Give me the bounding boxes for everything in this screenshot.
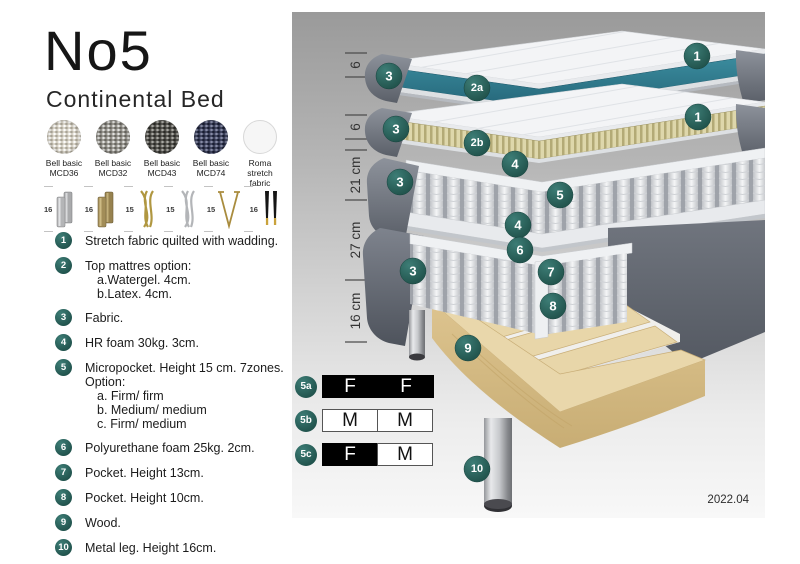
fabric-swatch: Bell basicMCD32 [91, 120, 135, 189]
fabric-swatch-icon [47, 120, 81, 154]
firmness-row-5a: 5a F F [295, 375, 434, 398]
feature-subitem: b. Medium/ medium [97, 403, 303, 417]
list-item: 8 Pocket. Height 10cm. [45, 489, 303, 506]
feature-badge: 1 [55, 232, 72, 249]
svg-text:1: 1 [693, 49, 700, 64]
leg-twist-gold-icon [136, 189, 158, 229]
fabric-swatch: Bell basicMCD74 [189, 120, 233, 189]
feature-text: Polyurethane foam 25kg. 2cm. [85, 439, 255, 456]
fabric-swatch: Bell basicMCD43 [140, 120, 184, 189]
feature-text: Stretch fabric quilted with wadding. [85, 232, 278, 249]
badge-fabric-mid: 3 [383, 116, 409, 142]
badge-micropocket: 5 [547, 182, 573, 208]
list-item: 5 Micropocket. Height 15 cm. 7zones. Opt… [45, 359, 303, 431]
fabric-swatch-icon [243, 120, 277, 154]
firmness-cell: M [322, 409, 378, 432]
svg-text:3: 3 [392, 122, 399, 137]
firmness-badge: 5c [295, 444, 317, 466]
fabric-swatch: Romastretch fabric [238, 120, 282, 189]
badge-pocket-13: 7 [538, 259, 564, 285]
svg-text:10: 10 [471, 463, 483, 475]
feature-badge: 4 [55, 334, 72, 351]
badge-wood: 9 [455, 335, 481, 361]
feature-badge: 8 [55, 489, 72, 506]
feature-text: Micropocket. Height 15 cm. 7zones. Optio… [85, 361, 284, 389]
svg-text:6: 6 [516, 243, 523, 258]
measure-label: 16 cm [348, 293, 363, 330]
firmness-badge: 5a [295, 376, 317, 398]
list-item: 3 Fabric. [45, 309, 303, 326]
feature-badge: 9 [55, 514, 72, 531]
list-item: 4 HR foam 30kg. 3cm. [45, 334, 303, 351]
leg-cylinder-silver-icon [54, 189, 76, 229]
feature-text: Wood. [85, 514, 121, 531]
badge-quilt-mid: 1 [685, 104, 711, 130]
list-item: 10 Metal leg. Height 16cm. [45, 539, 303, 556]
feature-text: Pocket. Height 13cm. [85, 464, 204, 481]
svg-text:3: 3 [396, 175, 403, 190]
firmness-cell: M [377, 409, 433, 432]
svg-text:2b: 2b [471, 137, 484, 149]
feature-list: 1 Stretch fabric quilted with wadding. 2… [45, 232, 303, 564]
svg-text:3: 3 [385, 69, 392, 84]
swatch-label: Bell basic [46, 158, 82, 168]
feature-subitem: c. Firm/ medium [97, 417, 303, 431]
back-left-leg [409, 310, 425, 361]
feature-subitem: a.Watergel. 4cm. [97, 273, 191, 287]
firmness-cell: M [377, 443, 433, 466]
feature-badge: 5 [55, 359, 72, 376]
badge-hr-foam-bottom: 4 [505, 212, 531, 238]
feature-text: HR foam 30kg. 3cm. [85, 334, 199, 351]
leg-size: 15 [125, 205, 133, 214]
feature-text: Metal leg. Height 16cm. [85, 539, 216, 556]
feature-text: Fabric. [85, 309, 123, 326]
measure-label: 6 [348, 61, 363, 69]
feature-text: Top mattres option: [85, 259, 191, 273]
badge-pocket-10: 8 [540, 293, 566, 319]
feature-text: Pocket. Height 10cm. [85, 489, 204, 506]
list-item: 2 Top mattres option: a.Watergel. 4cm. b… [45, 257, 303, 301]
badge-latex: 2b [464, 130, 490, 156]
swatch-label: Bell basic [193, 158, 229, 168]
badge-pu-foam: 6 [507, 237, 533, 263]
feature-subitem: b.Latex. 4cm. [97, 287, 191, 301]
fabric-swatch-icon [194, 120, 228, 154]
measure-label: 21 cm [348, 157, 363, 194]
firmness-table: 5a F F 5b M M 5c F M [295, 375, 434, 477]
leg-option: 16 [250, 189, 282, 229]
firmness-cell: F [322, 443, 378, 466]
leg-taper-black-gold-icon [260, 189, 282, 229]
firmness-cell: F [322, 375, 378, 398]
bed-cutaway-diagram: 6 6 21 cm 27 cm 16 cm [292, 12, 765, 518]
fabric-swatches: Bell basicMCD36 Bell basicMCD32 Bell bas… [42, 120, 282, 189]
list-item: 1 Stretch fabric quilted with wadding. [45, 232, 303, 249]
badge-metal-leg: 10 [464, 456, 490, 482]
swatch-code: MCD36 [50, 168, 79, 178]
badge-watergel: 2a [464, 75, 490, 101]
leg-option: 16 [44, 189, 76, 229]
swatch-code: MCD32 [99, 168, 128, 178]
list-item: 7 Pocket. Height 13cm. [45, 464, 303, 481]
feature-badge: 10 [55, 539, 72, 556]
firmness-row-5b: 5b M M [295, 409, 434, 432]
list-item: 6 Polyurethane foam 25kg. 2cm. [45, 439, 303, 456]
leg-size: 15 [207, 205, 215, 214]
swatch-label: Bell basic [95, 158, 131, 168]
firmness-badge: 5b [295, 410, 317, 432]
badge-quilt-top: 1 [684, 43, 710, 69]
list-item: 9 Wood. [45, 514, 303, 531]
firmness-row-5c: 5c F M [295, 443, 434, 466]
leg-twist-silver-icon [177, 189, 199, 229]
svg-text:4: 4 [514, 218, 522, 233]
version-label: 2022.04 [707, 494, 749, 506]
leg-option: 15 [166, 189, 198, 229]
firmness-cell: F [378, 375, 434, 398]
svg-text:5: 5 [556, 188, 563, 203]
page-subtitle: Continental Bed [46, 86, 225, 113]
svg-text:2a: 2a [471, 82, 484, 94]
leg-hairpin-gold-icon [217, 189, 241, 229]
leg-option: 16 [85, 189, 117, 229]
leg-size: 15 [166, 205, 174, 214]
svg-text:9: 9 [464, 341, 471, 356]
svg-text:8: 8 [549, 299, 556, 314]
feature-subitem: a. Firm/ firm [97, 389, 303, 403]
feature-badge: 2 [55, 257, 72, 274]
svg-text:4: 4 [511, 157, 519, 172]
svg-text:1: 1 [694, 110, 701, 125]
swatch-code: MCD74 [197, 168, 226, 178]
swatch-label: Roma [249, 158, 272, 168]
badge-fabric-core: 3 [387, 169, 413, 195]
swatch-code: MCD43 [148, 168, 177, 178]
badge-fabric-base: 3 [400, 258, 426, 284]
feature-badge: 6 [55, 439, 72, 456]
leg-option: 15 [125, 189, 157, 229]
svg-text:7: 7 [547, 265, 554, 280]
leg-size: 16 [250, 205, 258, 214]
feature-badge: 7 [55, 464, 72, 481]
leg-option: 15 [207, 189, 241, 229]
fabric-swatch-icon [96, 120, 130, 154]
measure-label: 27 cm [348, 222, 363, 259]
leg-size: 16 [85, 205, 93, 214]
badge-fabric-top: 3 [376, 63, 402, 89]
leg-size: 16 [44, 205, 52, 214]
measure-label: 6 [348, 123, 363, 131]
fabric-swatch: Bell basicMCD36 [42, 120, 86, 189]
svg-text:3: 3 [409, 264, 416, 279]
leg-cylinder-brass-icon [95, 189, 117, 229]
page-title: No5 [44, 18, 153, 83]
swatch-label: Bell basic [144, 158, 180, 168]
leg-options: 16 16 15 15 15 16 [44, 186, 282, 232]
fabric-swatch-icon [145, 120, 179, 154]
badge-hr-foam-top: 4 [502, 151, 528, 177]
feature-badge: 3 [55, 309, 72, 326]
